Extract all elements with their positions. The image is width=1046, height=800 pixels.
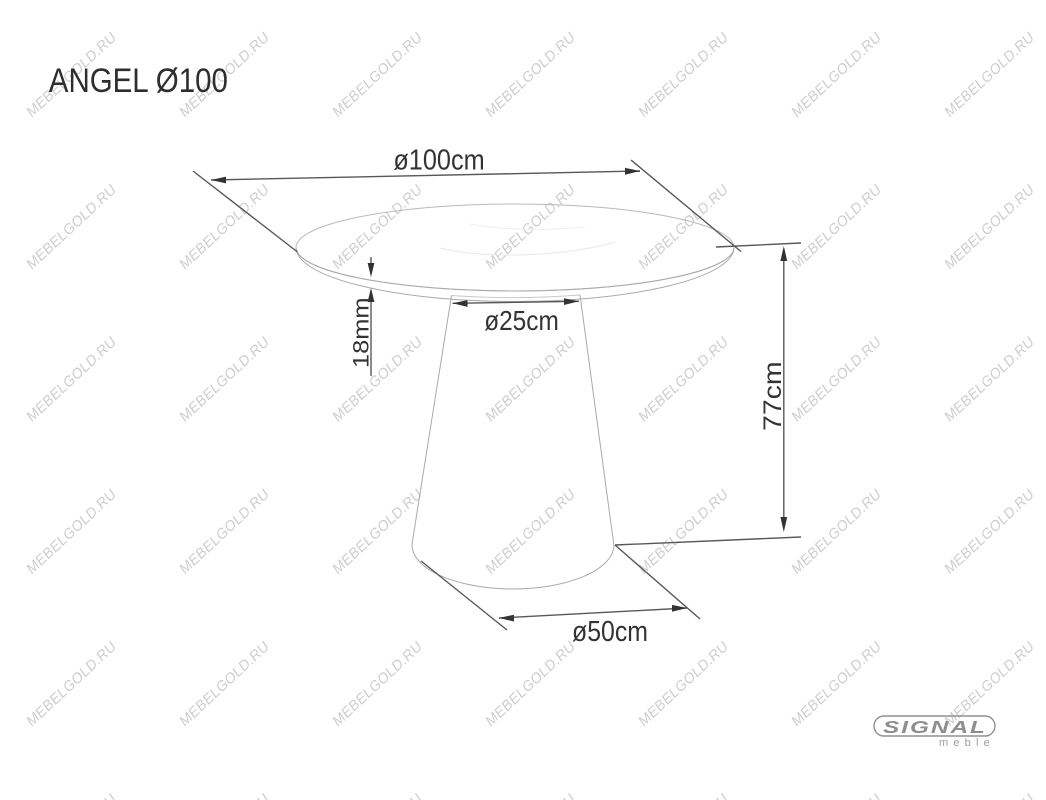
svg-text:77cm: 77cm	[759, 361, 787, 431]
svg-text:SIGNAL: SIGNAL	[883, 717, 987, 737]
svg-text:meble: meble	[939, 737, 995, 749]
svg-text:ø25cm: ø25cm	[484, 304, 559, 336]
svg-text:ANGEL Ø100: ANGEL Ø100	[49, 61, 228, 99]
svg-text:ø100cm: ø100cm	[393, 143, 484, 176]
svg-text:ø50cm: ø50cm	[572, 615, 648, 647]
